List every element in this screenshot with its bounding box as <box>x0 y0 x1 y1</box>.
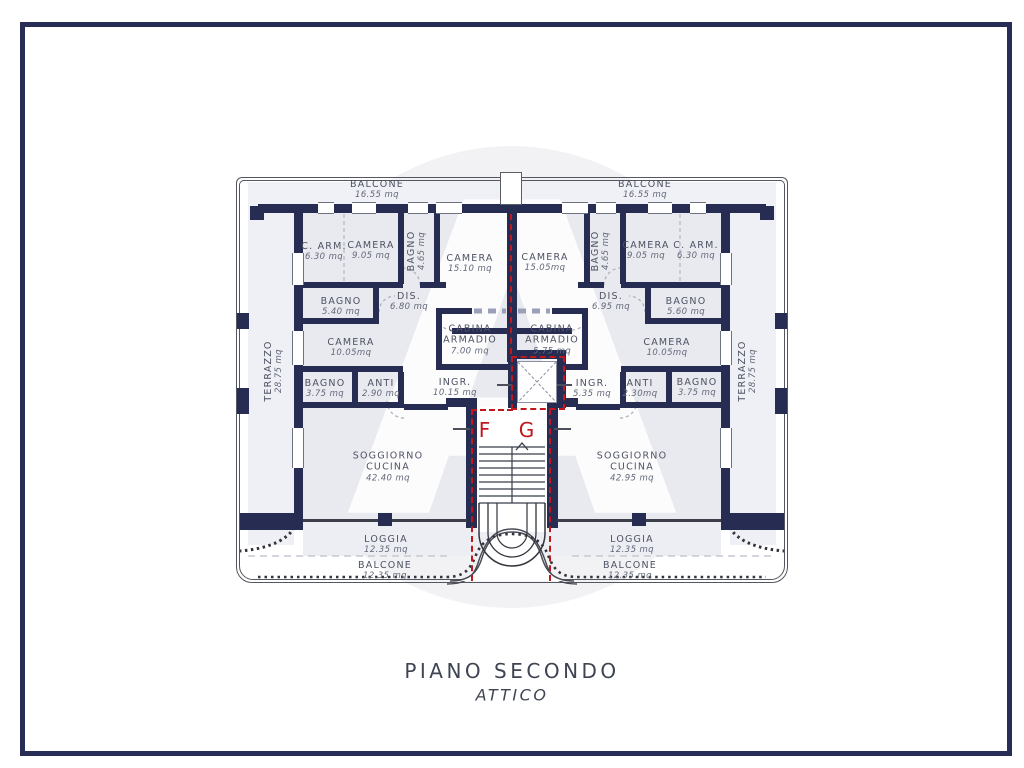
window <box>720 253 732 285</box>
room-label-bagno2-left: BAGNO5.40 mq <box>321 296 362 318</box>
section-line-elevator <box>511 356 565 410</box>
room-label-ingr-left: INGR.10.15 mq <box>433 377 477 399</box>
window <box>720 331 732 365</box>
railing-post <box>775 388 787 414</box>
wall <box>621 282 721 288</box>
room-label-ingr-right: INGR.5.35 mq <box>573 378 611 400</box>
unit-marker-g: G <box>519 418 536 442</box>
wall <box>442 308 472 314</box>
wall <box>434 213 440 284</box>
floor-subtitle: ATTICO <box>476 686 549 705</box>
room-label-cabina-left: CABINA ARMADIO7.00 mq <box>433 324 507 357</box>
railing-post <box>237 388 249 414</box>
door-tick <box>557 384 572 386</box>
window <box>720 428 732 468</box>
room-label-dis-right: DIS.6.95 mq <box>592 291 630 313</box>
room-label-cabina-right: CABINA ARMADIO5.75 mq <box>515 324 589 357</box>
wall <box>436 364 508 370</box>
door-tick <box>497 384 512 386</box>
unit-marker-f: F <box>479 418 492 442</box>
room-label-camera1-left: CAMERA9.05 mq <box>347 240 394 262</box>
room-label-bagno2-right: BAGNO5.60 mq <box>666 296 707 318</box>
room-label-bagno1-left: BAGNO4.65 mq <box>406 231 428 272</box>
room-label-balcone-bottom-left: BALCONE12.35 mq <box>358 560 412 582</box>
room-label-loggia-left: LOGGIA12.35 mq <box>364 534 408 556</box>
wall <box>303 282 403 288</box>
room-label-loggia-right: LOGGIA12.35 mq <box>610 534 654 556</box>
window <box>408 202 428 214</box>
shaft-protrusion <box>500 172 522 205</box>
room-label-balcone-top-left: BALCONE16.55 mq <box>350 179 404 201</box>
window <box>648 202 672 214</box>
room-label-camera3-left: CAMERA10.05mq <box>327 337 374 359</box>
window <box>596 202 616 214</box>
room-label-camera3-right: CAMERA10.05mq <box>643 337 690 359</box>
room-label-terrazzo-left: TERRAZZO28.75 mq <box>263 340 285 401</box>
wall <box>721 513 784 530</box>
section-line <box>510 214 512 354</box>
window <box>292 428 304 468</box>
wall <box>420 282 446 288</box>
room-label-bagno3-left: BAGNO3.75 mq <box>305 378 346 400</box>
room-label-carm-right: C. ARM.6.30 mq <box>673 240 718 262</box>
window <box>318 202 334 214</box>
room-label-camera1-right: CAMERA15.05mq <box>521 252 568 274</box>
section-line <box>471 409 513 411</box>
railing-post <box>237 313 249 329</box>
window <box>690 202 706 214</box>
door-tick <box>554 428 571 430</box>
post <box>632 513 646 526</box>
wall <box>666 372 672 406</box>
room-label-balcone-bottom-right: BALCONE12.35 mq <box>603 560 657 582</box>
window <box>562 202 588 214</box>
wall <box>404 404 448 410</box>
wall <box>398 213 404 284</box>
room-label-bagno3-right: BAGNO3.75 mq <box>677 377 718 399</box>
window <box>352 202 376 214</box>
wall <box>303 402 404 408</box>
room-label-carm-left: C. ARM.6.30 mq <box>301 241 346 263</box>
wall <box>240 513 303 530</box>
wall <box>620 402 721 408</box>
post <box>378 513 392 526</box>
section-line <box>471 409 473 581</box>
room-label-anti-right: ANTI2.30mq <box>622 378 657 400</box>
room-label-camera2-left: CAMERA15.10 mq <box>446 253 493 275</box>
door-tick <box>453 428 470 430</box>
wall <box>578 282 604 288</box>
room-label-dis-left: DIS.6.80 mq <box>390 291 428 313</box>
wall <box>584 213 590 284</box>
room-label-anti-left: ANTI2.90 mq <box>362 378 400 400</box>
railing-post <box>775 313 787 329</box>
wall <box>645 318 721 324</box>
wall <box>645 288 651 324</box>
wall <box>352 372 358 406</box>
room-label-balcone-top-right: BALCONE16.55 mq <box>618 179 672 201</box>
section-line <box>549 409 551 581</box>
room-label-soggiorno-right: SOGGIORNO CUCINA42.95 mq <box>590 451 674 484</box>
floor-title: PIANO SECONDO <box>404 659 619 683</box>
window <box>436 202 462 214</box>
room-label-soggiorno-left: SOGGIORNO CUCINA42.40 mq <box>346 451 430 484</box>
window <box>292 331 304 365</box>
room-label-camera2-right: CAMERA9.05 mq <box>622 240 669 262</box>
wall <box>576 404 620 410</box>
room-label-terrazzo-right: TERRAZZO28.75 mq <box>737 340 759 401</box>
wall <box>303 318 379 324</box>
room-label-bagno1-right: BAGNO4.65 mq <box>590 231 612 272</box>
wall <box>552 308 582 314</box>
wall <box>373 288 379 324</box>
